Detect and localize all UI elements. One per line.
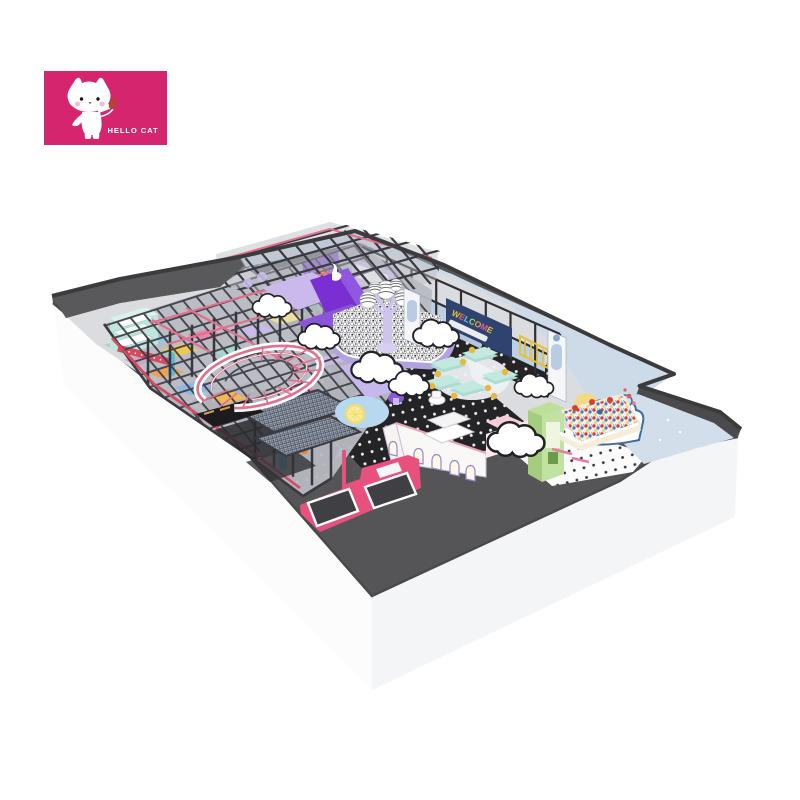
svg-text:HELLO CAT: HELLO CAT (108, 126, 159, 135)
